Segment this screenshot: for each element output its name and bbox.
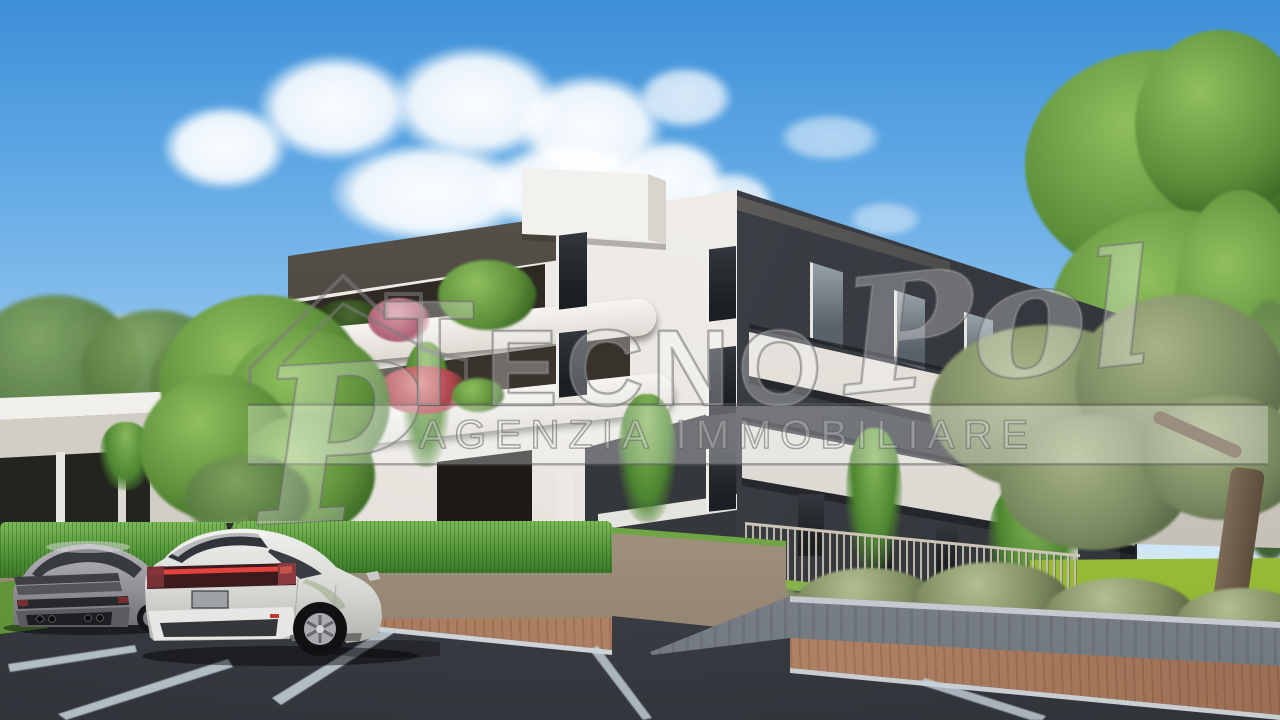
parking-line: [589, 646, 652, 720]
parking-line: [8, 645, 137, 672]
sedan-license-plate: [192, 591, 228, 608]
sedan-antenna-fin: [226, 523, 234, 529]
architectural-rendering-scene: P TECNO Pol AGENZIA IMMOBILIARE: [0, 0, 1280, 720]
sedan-mirror: [366, 571, 380, 581]
car-sedan: [130, 515, 440, 680]
parking-line: [918, 678, 1046, 720]
